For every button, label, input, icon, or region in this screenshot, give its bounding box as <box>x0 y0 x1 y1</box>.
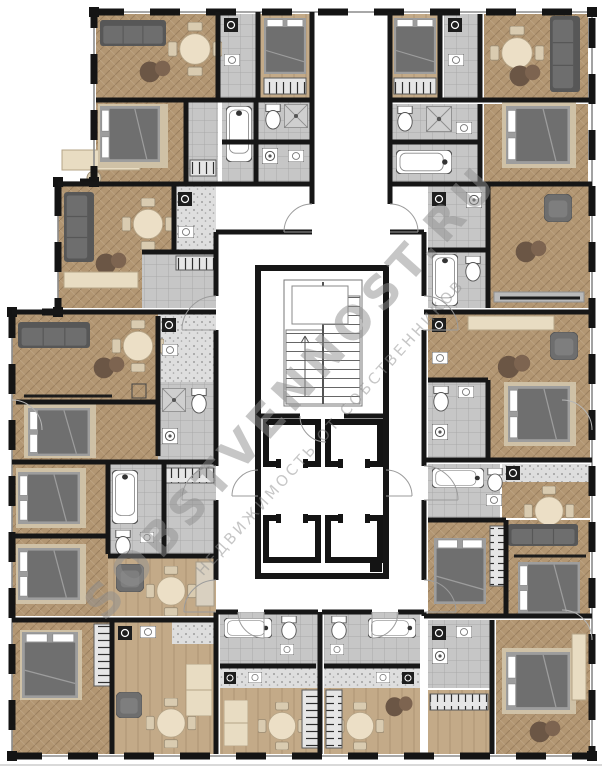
sink <box>140 626 156 638</box>
washing-machine <box>432 648 448 664</box>
toilet <box>466 256 480 281</box>
washing-machine <box>432 424 448 440</box>
bed <box>434 538 486 604</box>
armchair <box>550 332 578 360</box>
elevator-door <box>280 515 304 522</box>
sink <box>288 150 304 162</box>
wardrobe <box>430 694 488 710</box>
wardrobe <box>326 690 342 748</box>
sofa <box>18 322 90 348</box>
bathtub <box>226 106 252 162</box>
bed <box>28 408 90 456</box>
sofa <box>508 524 578 546</box>
bed <box>264 18 306 74</box>
shower <box>284 104 308 128</box>
stove <box>448 18 462 32</box>
page-bottom-rule <box>0 764 602 766</box>
shower <box>426 106 452 132</box>
sink <box>486 494 502 506</box>
toilet <box>488 468 502 491</box>
bed <box>18 548 80 600</box>
wardrobe <box>302 690 318 748</box>
sink <box>432 352 448 364</box>
sofa <box>100 20 166 46</box>
cabinet <box>224 700 248 746</box>
toilet <box>398 106 412 131</box>
kitchen-counter <box>172 620 216 644</box>
sink <box>280 644 294 655</box>
bathtub <box>396 150 452 174</box>
toilet <box>266 104 280 129</box>
shower <box>162 388 186 412</box>
door-jamb <box>338 459 343 468</box>
door-jamb <box>365 459 370 468</box>
wardrobe <box>94 624 110 686</box>
bed <box>508 386 570 442</box>
bathtub <box>112 470 138 524</box>
door-jamb <box>276 514 281 523</box>
door-jamb <box>303 514 308 523</box>
stove <box>432 626 446 640</box>
wardrobe <box>394 78 436 94</box>
sink <box>448 54 464 66</box>
armchair <box>544 194 572 222</box>
bathtub <box>224 618 272 638</box>
stove <box>118 626 132 640</box>
stove <box>506 466 520 480</box>
stove <box>224 672 236 684</box>
utility-shaft <box>370 560 382 572</box>
tv-console <box>64 272 138 288</box>
washing-machine <box>162 428 178 444</box>
elevator-4 <box>328 518 380 560</box>
door-jamb <box>276 459 281 468</box>
door-swing <box>284 204 312 232</box>
door-jamb <box>365 514 370 523</box>
bed <box>18 472 80 524</box>
sink <box>456 122 472 134</box>
wardrobe <box>176 256 214 270</box>
sink <box>224 54 240 66</box>
sink <box>330 644 344 655</box>
bed <box>100 106 160 162</box>
stove <box>224 18 238 32</box>
elevator-door <box>342 460 366 467</box>
wardrobe <box>264 78 306 94</box>
sofa <box>550 16 580 92</box>
bed <box>394 18 436 74</box>
toilet <box>282 616 296 639</box>
elevator-door <box>342 515 366 522</box>
armchair <box>116 692 142 718</box>
toilet <box>434 386 448 411</box>
floor-plan-svg: SOBSTVENNOST.RU НЕДВИЖИМОСТЬ ОТ СОБСТВЕН… <box>0 0 602 768</box>
sink <box>178 226 194 238</box>
stove <box>178 192 192 206</box>
bed <box>506 652 570 710</box>
door-jamb <box>338 514 343 523</box>
sink <box>248 672 262 683</box>
bed <box>506 106 570 164</box>
sink <box>376 672 390 683</box>
desk <box>572 634 586 700</box>
wardrobe <box>190 160 216 176</box>
kitchen-counter <box>468 316 554 330</box>
sink <box>162 344 178 356</box>
toilet <box>332 616 346 639</box>
bed <box>518 562 580 614</box>
sink <box>456 626 472 638</box>
stove <box>162 318 176 332</box>
elevator-3 <box>266 518 318 560</box>
toilet <box>192 388 206 413</box>
wardrobe <box>490 526 504 586</box>
bathtub <box>432 468 484 488</box>
floor-plan-page: SOBSTVENNOST.RU НЕДВИЖИМОСТЬ ОТ СОБСТВЕН… <box>0 0 602 768</box>
cabinet <box>186 664 212 716</box>
bed <box>22 632 78 698</box>
sofa <box>64 192 94 262</box>
door-swing <box>386 470 412 496</box>
sink <box>458 386 474 398</box>
stove <box>402 672 414 684</box>
washing-machine <box>262 148 278 164</box>
